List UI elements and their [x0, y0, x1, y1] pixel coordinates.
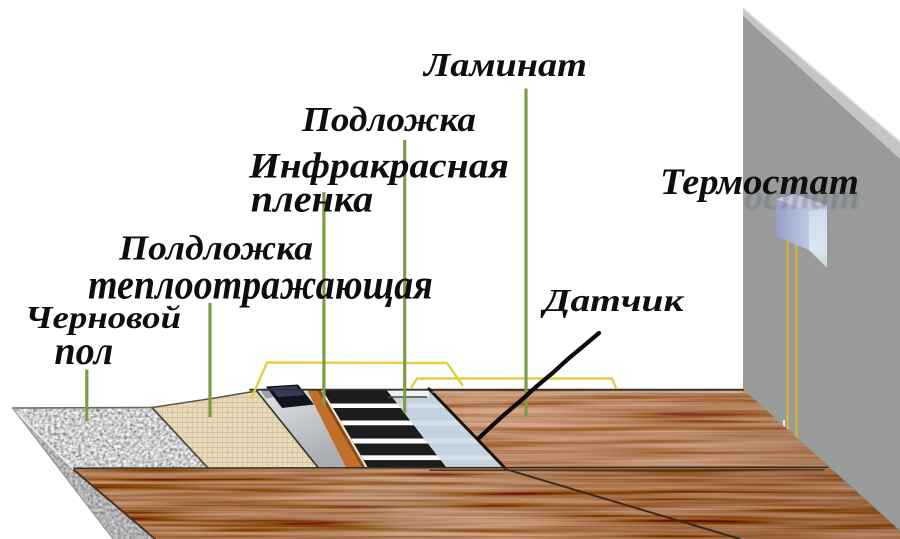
svg-text:Датчик: Датчик [540, 282, 684, 318]
svg-text:пол: пол [54, 329, 113, 373]
svg-text:пленка: пленка [251, 178, 373, 220]
svg-text:Подложка: Подложка [301, 100, 476, 139]
svg-text:Ламинат: Ламинат [422, 46, 587, 84]
